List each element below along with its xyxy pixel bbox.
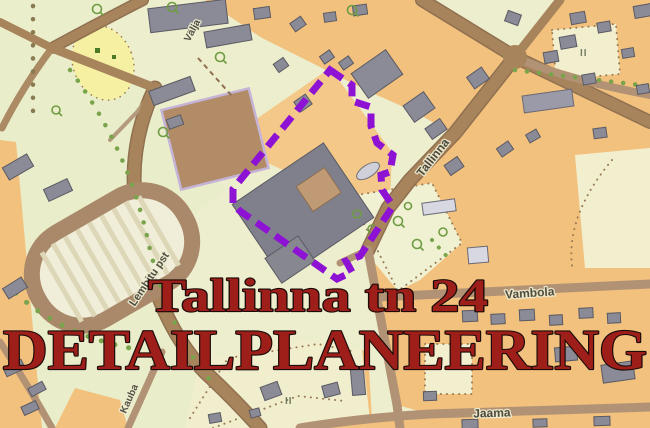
street-label-jaama: Jaama xyxy=(473,405,511,420)
floor-mark: II xyxy=(285,396,293,407)
map-screenshot: Välja Tallinna Lembitu pst Kauba Vambola… xyxy=(0,0,650,428)
floor-mark: II xyxy=(580,48,588,59)
plan-title-line1: Tallinna tn 24 xyxy=(148,270,488,322)
map-canvas: Välja Tallinna Lembitu pst Kauba Vambola… xyxy=(0,0,650,428)
plan-title-line2: DETAILPLANEERING xyxy=(3,319,647,382)
